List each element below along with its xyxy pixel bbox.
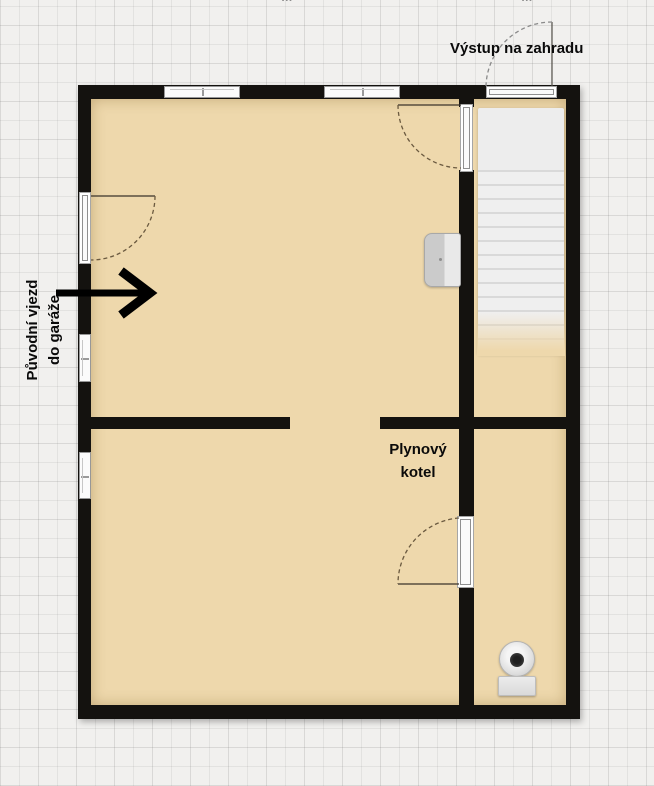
- toilet-bowl-hole: [510, 653, 524, 667]
- garage-label-line2: do garáže: [44, 265, 66, 395]
- wall-interior-vertical-lower: [459, 588, 474, 705]
- left-window-upper: [79, 334, 91, 382]
- interior-upper-door: [460, 104, 473, 172]
- garden-exit-door: [486, 86, 557, 98]
- wall-interior-horizontal-left: [91, 417, 290, 429]
- toilet-tank: [498, 676, 536, 696]
- original-garage-entrance-label: Původní vjezd do garáže: [22, 265, 66, 395]
- wall-interior-horizontal-right: [474, 417, 566, 429]
- gas-boiler-unit: [424, 233, 461, 287]
- interior-lower-door: [457, 516, 474, 588]
- wall-exterior-left: [78, 85, 91, 719]
- exterior-left-door: [79, 192, 91, 264]
- wall-interior-horizontal-middle: [380, 417, 459, 429]
- garage-label-line1: Původní vjezd: [22, 265, 44, 395]
- wall-exterior-bottom: [78, 705, 580, 719]
- boiler-label-line1: Plynový: [356, 438, 480, 461]
- top-window-right: [324, 86, 400, 98]
- left-window-lower: [79, 452, 91, 499]
- dimension-label-top-left: ····· m: [252, 0, 293, 4]
- floor-plan-canvas: ····· m ····· m: [0, 0, 654, 786]
- boiler-label: Plynový kotel: [356, 438, 480, 484]
- stair-fade: [477, 312, 565, 356]
- garden-exit-label: Výstup na zahradu: [450, 40, 583, 57]
- dimension-label-top-right: ····· m: [492, 0, 533, 4]
- wall-exterior-right: [566, 85, 580, 719]
- boiler-label-line2: kotel: [356, 461, 480, 484]
- top-window-left: [164, 86, 240, 98]
- staircase: [478, 108, 564, 354]
